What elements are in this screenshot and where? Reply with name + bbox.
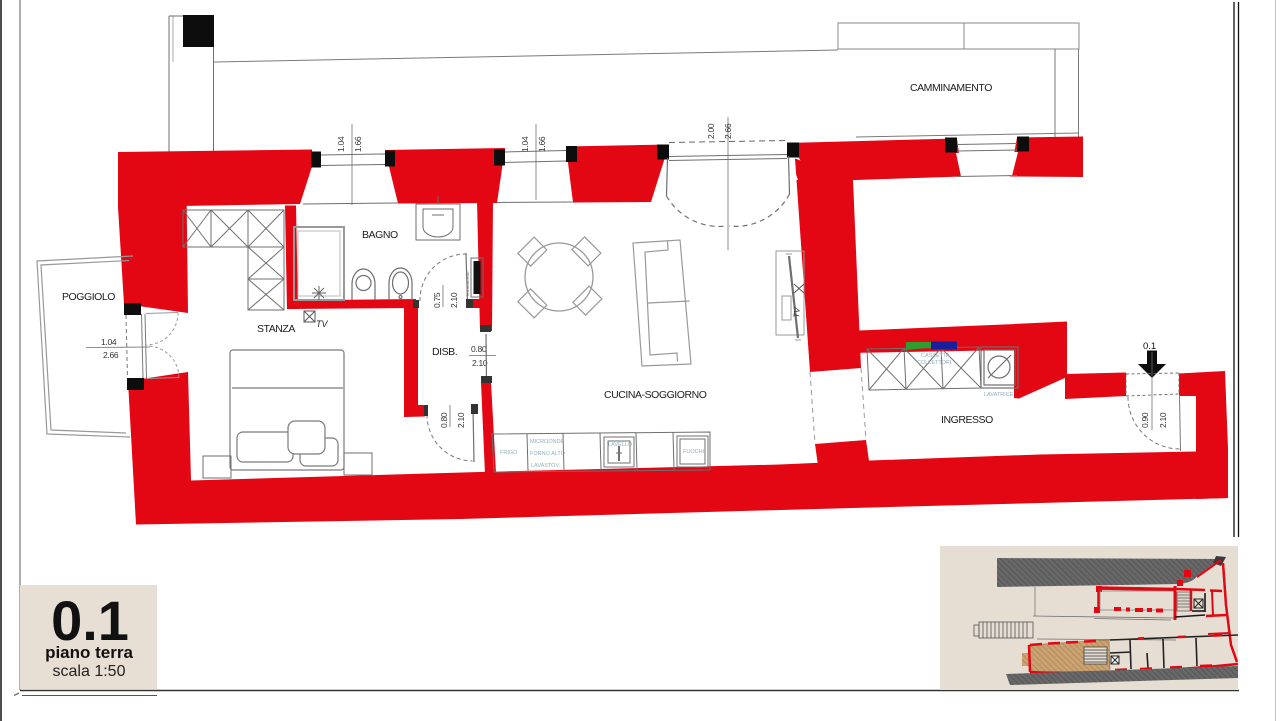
svg-text:MICROONDE: MICROONDE (530, 439, 565, 445)
svg-text:scala 1:50: scala 1:50 (53, 663, 126, 680)
svg-text:2.10: 2.10 (449, 292, 459, 308)
svg-text:termoarredo: termoarredo (465, 271, 470, 296)
svg-text:POGGIOLO: POGGIOLO (62, 291, 115, 303)
svg-text:CAMMINAMENTO: CAMMINAMENTO (910, 82, 992, 94)
svg-text:STANZA: STANZA (257, 323, 295, 335)
svg-text:0.90: 0.90 (1140, 412, 1150, 428)
svg-text:1.66: 1.66 (537, 136, 547, 152)
svg-text:FRIGO: FRIGO (500, 450, 518, 456)
svg-text:2.10: 2.10 (456, 412, 466, 428)
svg-text:2.00: 2.00 (706, 123, 716, 139)
svg-text:BAGNO: BAGNO (362, 229, 398, 241)
svg-text:0.80: 0.80 (471, 344, 487, 354)
svg-text:0.75: 0.75 (432, 292, 442, 308)
svg-text:CUCINA-SOGGIORNO: CUCINA-SOGGIORNO (604, 389, 707, 401)
svg-text:INGRESSO: INGRESSO (941, 414, 993, 426)
svg-text:piano terra: piano terra (45, 643, 133, 662)
svg-text:FUOCHI: FUOCHI (683, 449, 705, 455)
svg-text:COLLETTORI: COLLETTORI (917, 360, 952, 366)
svg-text:FORNO ALTO: FORNO ALTO (530, 451, 566, 457)
svg-text:LAVASTOV.: LAVASTOV. (531, 463, 561, 469)
svg-text:2.66: 2.66 (723, 123, 733, 139)
svg-text:1.04: 1.04 (336, 136, 346, 152)
svg-text:DISB.: DISB. (432, 346, 457, 358)
svg-text:2.66: 2.66 (103, 350, 119, 360)
svg-text:CASSETTA: CASSETTA (921, 353, 950, 359)
svg-text:1.04: 1.04 (101, 337, 117, 347)
svg-text:2.10: 2.10 (1158, 412, 1168, 428)
svg-text:TV: TV (792, 307, 802, 319)
svg-text:LAVELLO: LAVELLO (608, 442, 633, 448)
svg-text:0.1: 0.1 (1143, 341, 1156, 352)
svg-text:1.66: 1.66 (353, 136, 363, 152)
svg-text:1.04: 1.04 (520, 136, 530, 152)
svg-text:LAVATRICE: LAVATRICE (984, 392, 1014, 398)
svg-text:2.10: 2.10 (472, 358, 488, 368)
svg-text:TV: TV (316, 319, 328, 329)
svg-text:0.80: 0.80 (439, 412, 449, 428)
